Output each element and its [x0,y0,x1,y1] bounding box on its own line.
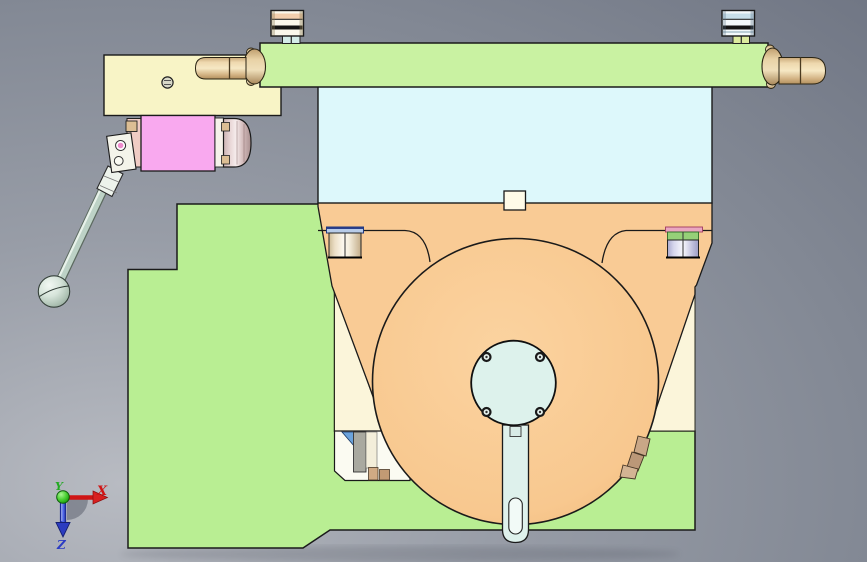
gearbox-screw-icon [162,77,173,88]
hub-screw-dot [485,356,487,358]
right-knob-shade [723,11,727,36]
face-panel-plate[interactable] [318,86,712,203]
right-bolt-rim [666,227,703,232]
cad-viewport[interactable]: X Y Z [0,0,867,562]
strap-pivot-tab [510,427,521,437]
x-axis-label: X [96,484,108,499]
left-knob-shade [272,11,276,36]
hub-screw-dot [539,356,541,358]
latch-cream-slide [366,432,377,468]
pointer-strap[interactable] [503,425,529,543]
latch-pad-left [369,468,379,481]
face-panel[interactable] [318,86,712,210]
motor-left-lug [126,121,137,132]
left-handle-collar [244,49,266,84]
left-cap-bolt[interactable] [327,227,364,258]
latch-pad-right [380,470,390,481]
lever-mount-bracket[interactable] [107,133,136,173]
alignment-key-block [504,191,526,210]
right-cap-bolt[interactable] [666,227,703,258]
strap-slot [509,498,523,534]
motor-cap-lug-bottom [222,156,230,165]
top-clamp-bar[interactable] [260,43,768,87]
bracket-plate [107,133,136,173]
motor-block[interactable] [141,116,215,172]
hub-screw-dot [539,411,541,413]
latch-gray-pin [354,432,367,472]
right-knob-shade [751,11,755,36]
y-axis-label: Y [55,480,64,493]
hub-screw-dot [485,411,487,413]
right-handle-grip[interactable] [779,58,826,85]
right-knob-cap-band [723,14,754,20]
left-knob-cap-band [272,14,303,20]
left-handle-grip[interactable] [196,58,247,80]
motor-cap-lug-top [222,123,230,132]
lever-ball[interactable] [38,276,69,307]
left-knob-knurl-stripe [272,26,303,30]
right-knob-knurl-stripe [723,26,754,30]
motor-assembly[interactable] [107,116,251,173]
z-axis-label: Z [56,538,67,552]
left-knob-shade [300,11,304,36]
